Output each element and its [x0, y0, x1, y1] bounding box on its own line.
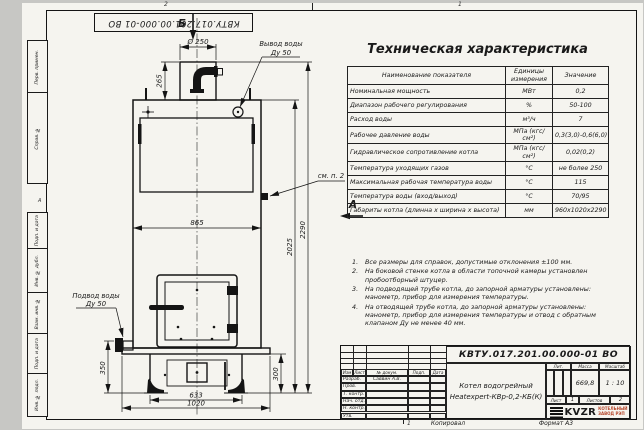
base-foot	[228, 378, 245, 393]
outlet-label: Вывод воды	[259, 40, 303, 48]
dim-633: 633	[189, 392, 202, 400]
spec-unit: м³/ч	[506, 113, 553, 127]
dim-865: 865	[190, 219, 204, 227]
tb-row-name	[366, 391, 408, 398]
chimney-elbow	[190, 66, 223, 93]
tb-scale-value: 1 : 10	[599, 370, 631, 396]
tb-row-label: Пров.	[341, 383, 366, 390]
spec-unit: мм	[506, 203, 553, 217]
spec-unit: МПа (кгс/см²)	[506, 144, 553, 161]
spec-row: Диапазон рабочего регулирования%50-100	[348, 99, 609, 113]
spec-value: 0,02(0,2)	[553, 144, 609, 161]
tb-sheets-value: 2	[610, 396, 631, 404]
spec-unit: МПа (кгс/см²)	[506, 127, 553, 144]
spec-value: 0,3(3,0)-0,6(6,0)	[553, 127, 609, 144]
spec-row: Температура уходящих газов°Сне более 250	[348, 161, 609, 175]
spec-row: Температура воды (вход/выход)°С70/95	[348, 189, 609, 203]
spec-value: 115	[553, 175, 609, 189]
spec-name: Рабочее давление воды	[348, 127, 506, 144]
top-fitting-cross	[142, 106, 154, 118]
note-text: На боковой стенке котла в области топочн…	[365, 267, 610, 284]
tb-row-label: Т. контр.	[341, 391, 366, 398]
note-number: 3.	[352, 285, 365, 302]
spec-value: 960х1020х2290	[553, 203, 609, 217]
water-inlet-port	[115, 338, 133, 352]
spec-row: Габариты котла (длинна х ширина х высота…	[348, 203, 609, 217]
spec-row: Максимальная рабочая температура воды°С1…	[348, 175, 609, 189]
note-item: 2.На боковой стенке котла в области топо…	[352, 267, 610, 284]
dim-1020: 1020	[187, 400, 205, 408]
format-label: Формат А3	[526, 420, 586, 427]
spec-header-row: Наименование показателя Единицы измерени…	[348, 67, 609, 85]
spec-name: Температура воды (вход/выход)	[348, 189, 506, 203]
spec-name: Расход воды	[348, 113, 506, 127]
dimension-lines	[104, 44, 312, 412]
tb-mass-value: 669,8	[571, 370, 599, 396]
tb-col-izm: Изм	[341, 369, 353, 376]
base-foot	[147, 378, 164, 393]
product-name-line2: Heatexpert-КВр-0,2-КБ(К)	[450, 392, 543, 403]
note-number: 4.	[352, 303, 365, 328]
note-text: На отводящей трубе котла, до запорной ар…	[365, 303, 610, 328]
outlet-dn-label: Ду 50	[270, 49, 291, 57]
spec-unit: °С	[506, 161, 553, 175]
tb-col-podp: Подп.	[408, 369, 430, 376]
tb-company-cell: KVZR КОТЕЛЬНЫЙ ЗАВОД РЭП	[546, 404, 631, 420]
tb-col-doc: № докум.	[366, 369, 408, 376]
spec-value: 50-100	[553, 99, 609, 113]
spec-row: Рабочее давление водыМПа (кгс/см²)0,3(3,…	[348, 127, 609, 144]
tb-lit-label: Лит.	[546, 363, 571, 370]
tb-date-cell	[430, 376, 446, 383]
dim-265: 265	[156, 74, 164, 88]
tb-mass-label: Масса	[571, 363, 599, 370]
inlet-label: Подвод воды	[72, 292, 120, 300]
spec-value: 7	[553, 113, 609, 127]
notes-list: 1.Все размеры для справок, допустимые от…	[352, 258, 610, 329]
spec-header: Значение	[553, 67, 609, 85]
tb-sheets-label: Листов	[579, 396, 610, 404]
door-hinge	[227, 286, 238, 295]
dim-350: 350	[99, 361, 107, 375]
note-item: 3.На подводящей трубе котла, до запорной…	[352, 285, 610, 302]
grid-line	[353, 346, 354, 369]
tb-row-name: Саввин А.В.	[366, 376, 408, 383]
grid-line	[366, 346, 367, 369]
spec-unit: МВт	[506, 85, 553, 99]
spec-name: Диапазон рабочего регулирования	[348, 99, 506, 113]
note-item: 1.Все размеры для справок, допустимые от…	[352, 258, 610, 266]
upper-panel	[138, 118, 255, 192]
tb-sign-cell	[408, 398, 430, 405]
spec-row: Расход водым³/ч7	[348, 113, 609, 127]
sampling-fitting	[261, 193, 268, 200]
door-handle	[149, 305, 184, 310]
tb-lit-cell	[563, 370, 571, 396]
spec-unit: °С	[506, 175, 553, 189]
tb-row-name	[366, 413, 408, 421]
door-hinge	[227, 324, 238, 333]
tb-product-name: Котел водогрейный Heatexpert-КВр-0,2-КБ(…	[446, 363, 546, 420]
spec-unit: °С	[506, 189, 553, 203]
dim-2290: 2290	[299, 221, 307, 239]
tb-row-label: Разраб.	[341, 376, 366, 383]
spec-unit: %	[506, 99, 553, 113]
tb-col-list: Лист	[353, 369, 366, 376]
spec-value: 70/95	[553, 189, 609, 203]
view-b-label: Б	[178, 18, 186, 30]
spec-row: Номинальная мощностьМВт0,2	[348, 85, 609, 99]
spec-name: Температура уходящих газов	[348, 161, 506, 175]
tb-row-label: Н. контр.	[341, 405, 366, 412]
spec-value: не более 250	[553, 161, 609, 175]
tb-row-name	[366, 398, 408, 405]
company-name: КОТЕЛЬНЫЙ ЗАВОД РЭП	[598, 407, 627, 416]
tb-date-cell	[430, 413, 446, 421]
title-block: Изм Лист № докум. Подп. Дата Разраб. Сав…	[340, 345, 630, 419]
spec-row: Гидравлическое сопротивление котлаМПа (к…	[348, 144, 609, 161]
tb-doc-number: КВТУ.017.201.00.000-01 ВО	[446, 346, 631, 363]
tb-sign-cell	[408, 391, 430, 398]
dim-2025: 2025	[286, 238, 294, 256]
see-note-callout: см. п. 2	[270, 172, 345, 196]
spec-table: Наименование показателя Единицы измерени…	[347, 66, 609, 218]
view-b-marker: Б	[178, 14, 196, 40]
tb-date-cell	[430, 405, 446, 412]
tb-sign-cell	[408, 383, 430, 390]
tb-sign-cell	[408, 413, 430, 421]
spec-value: 0,2	[553, 85, 609, 99]
spec-header: Наименование показателя	[348, 67, 506, 85]
furnace-door	[149, 275, 238, 347]
note-item: 4.На отводящей трубе котла, до запорной …	[352, 303, 610, 328]
spec-table-title: Техническая характеристика	[347, 42, 608, 57]
inlet-callout: Подвод воды Ду 50	[72, 292, 123, 337]
note-text: Все размеры для справок, допустимые откл…	[365, 258, 610, 266]
tb-lit-cell	[554, 370, 562, 396]
water-outlet-port	[233, 107, 243, 117]
note-number: 2.	[352, 267, 365, 284]
tb-scale-label: Масштаб	[599, 363, 631, 370]
dim-diameter-250: Ø 250	[186, 38, 209, 46]
spec-name: Габариты котла (длинна х ширина х высота…	[348, 203, 506, 217]
spec-name: Максимальная рабочая температура воды	[348, 175, 506, 189]
tb-row-name	[366, 383, 408, 390]
kvzr-logo-icon	[550, 407, 563, 418]
tb-sheet-value: 1	[566, 396, 579, 404]
tb-row-label: Утв.	[341, 413, 366, 421]
dim-300: 300	[272, 367, 280, 381]
tb-sign-cell	[408, 405, 430, 412]
company-name-line2: ЗАВОД РЭП	[598, 412, 627, 417]
kvzr-logo-text: KVZR	[565, 407, 597, 418]
product-name-line1: Котел водогрейный	[459, 381, 533, 392]
spec-name: Номинальная мощность	[348, 85, 506, 99]
grid-line	[430, 346, 431, 369]
inlet-dn-label: Ду 50	[85, 300, 106, 308]
tb-sign-cell	[408, 376, 430, 383]
spec-header: Единицы измерения	[506, 67, 553, 85]
tb-date-cell	[430, 383, 446, 390]
note-text: На подводящей трубе котла, до запорной а…	[365, 285, 610, 302]
spec-name: Гидравлическое сопротивление котла	[348, 144, 506, 161]
note-number: 1.	[352, 258, 365, 266]
copied-label: Копировал	[418, 420, 478, 427]
tb-row-name	[366, 405, 408, 412]
tb-col-data: Дата	[430, 369, 446, 376]
tb-row-label: Нач. отд.	[341, 398, 366, 405]
grid-line	[408, 346, 409, 369]
see-note-label: см. п. 2	[318, 172, 344, 180]
tb-date-cell	[430, 391, 446, 398]
tb-lit-cell	[546, 370, 554, 396]
tb-sheet-label: Лист	[546, 396, 566, 404]
boiler-base	[122, 348, 270, 393]
tb-date-cell	[430, 398, 446, 405]
